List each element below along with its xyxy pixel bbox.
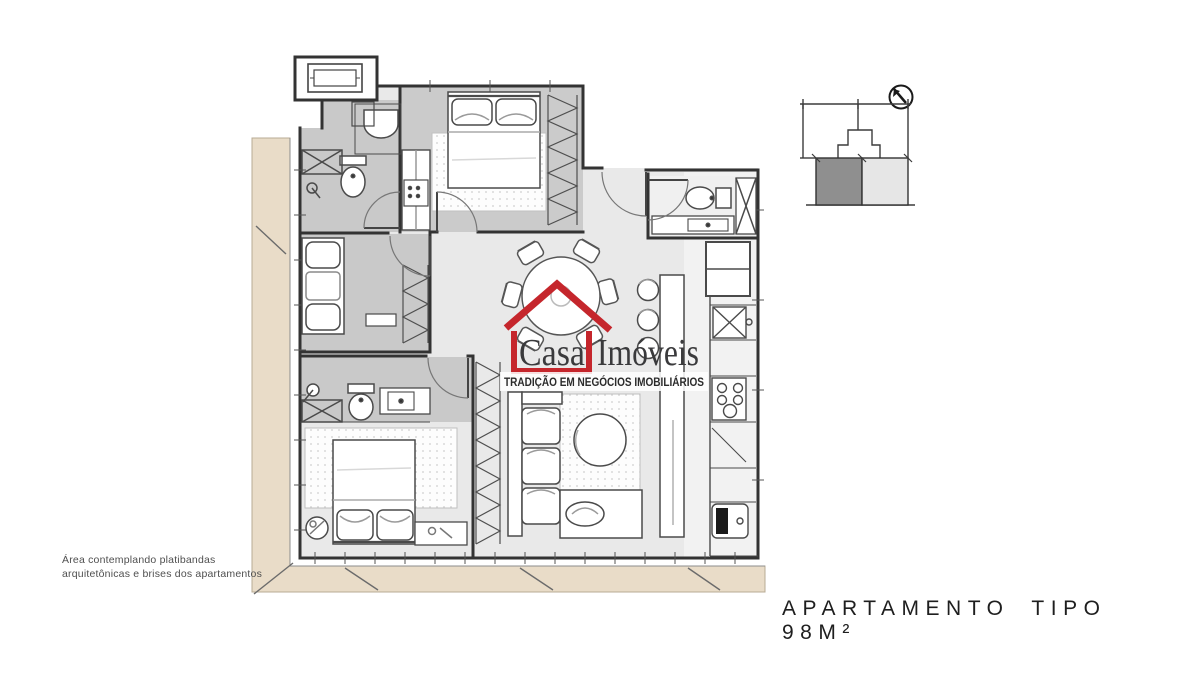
planter-box — [308, 64, 362, 92]
apartment-type-caption: APARTAMENTO TIPO 98M² — [782, 597, 1200, 645]
logo-word-imoveis: Imóveis — [597, 332, 699, 374]
key-plan-unit-secondary — [862, 158, 908, 205]
platband-note-line2: arquitetônicas e brises dos apartamentos — [62, 568, 262, 582]
logo-tagline: TRADIÇÃO EM NEGÓCIOS IMOBILIÁRIOS — [504, 376, 704, 389]
platband-note-line1: Área contemplando platibandas — [62, 554, 262, 568]
logo-word-casa: Casa — [519, 332, 585, 374]
floor-plan-page: Casa Imóveis TRADIÇÃO EM NEGÓCIOS IMOBIL… — [0, 0, 1200, 675]
north-arrow-icon — [890, 86, 913, 109]
key-plan — [800, 86, 915, 206]
key-plan-unit-highlighted — [816, 158, 862, 205]
platband-note: Área contemplando platibandas arquitetôn… — [62, 554, 262, 581]
